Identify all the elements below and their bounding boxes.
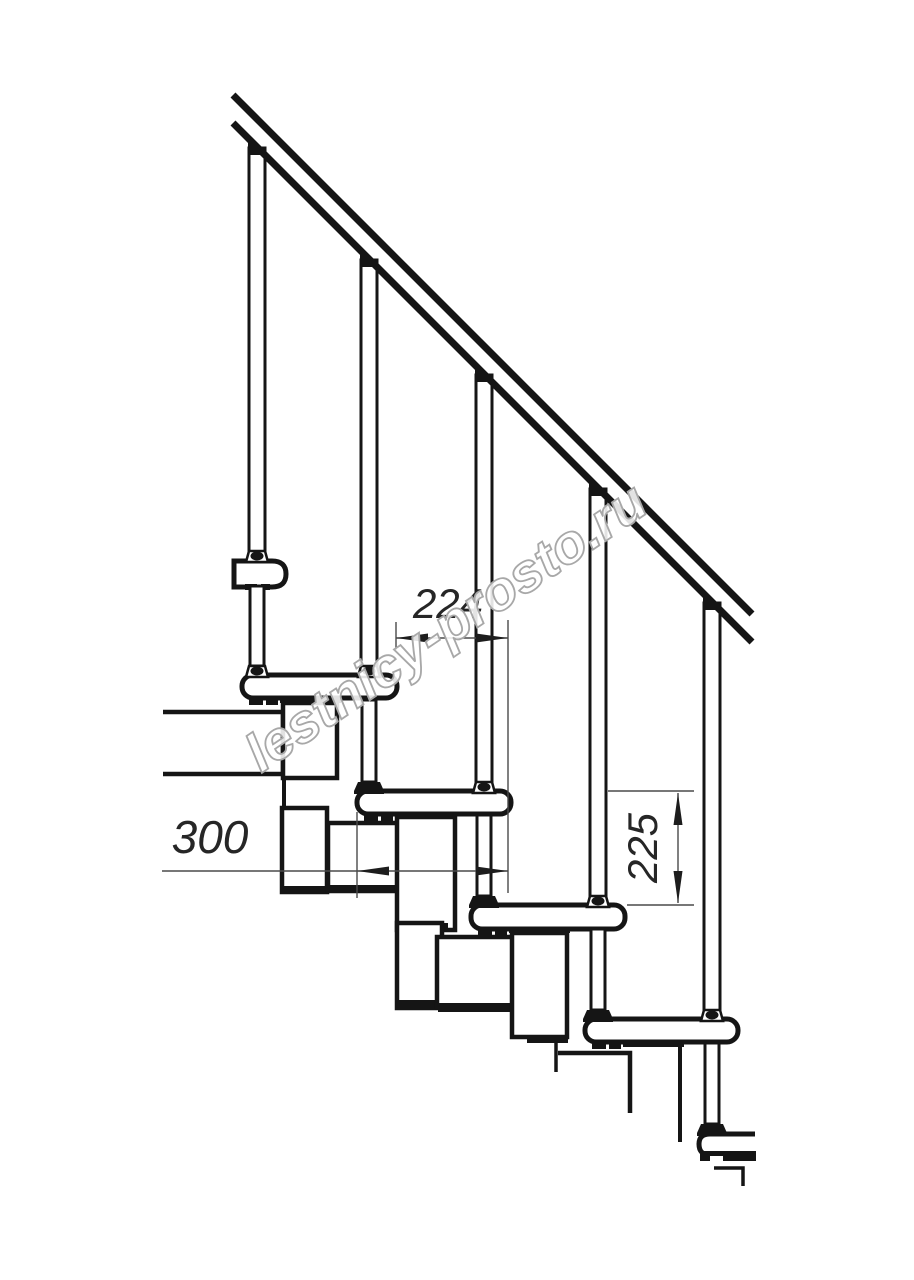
module-box — [282, 808, 327, 892]
module-base-plate — [527, 1036, 568, 1043]
foot — [701, 1010, 723, 1021]
dimension-label-300: 300 — [172, 811, 249, 863]
staircase-drawing: 224 300 225 lestnicy-prosto.ru — [0, 0, 914, 1280]
technical-drawing-page: 224 300 225 lestnicy-prosto.ru — [0, 0, 914, 1280]
post — [477, 815, 491, 896]
tread-upper-cut — [234, 561, 286, 587]
foot — [246, 666, 268, 677]
module-base-plate — [281, 886, 328, 893]
baluster-2 — [361, 260, 377, 667]
arrow-down-icon — [674, 871, 683, 903]
module-box — [397, 817, 455, 930]
foot — [587, 896, 609, 907]
dimension-225: 225 — [608, 791, 694, 905]
tread-2 — [357, 791, 511, 814]
post — [250, 586, 264, 666]
arrow-up-icon — [674, 793, 683, 825]
module-base-plate — [438, 1003, 515, 1012]
module-box — [437, 937, 515, 1007]
bottom-break-line — [714, 1168, 743, 1186]
foot — [246, 551, 268, 562]
baluster-1 — [249, 148, 265, 552]
module-base-plate — [329, 885, 403, 893]
module-box — [328, 823, 403, 891]
baluster-5 — [704, 603, 720, 1011]
post-clamp — [354, 782, 384, 794]
tread-4 — [585, 1019, 738, 1042]
post-clamp — [583, 1010, 613, 1022]
post — [591, 929, 605, 1010]
foot — [473, 782, 495, 793]
post-clamp — [469, 896, 499, 908]
post — [705, 1043, 719, 1124]
dimension-label-225: 225 — [619, 812, 666, 884]
tread-3 — [471, 905, 625, 929]
module-box — [512, 933, 567, 1037]
module-box-partial — [558, 1053, 630, 1113]
bottom-base-plate — [700, 1151, 756, 1161]
post-clamp — [697, 1124, 727, 1136]
